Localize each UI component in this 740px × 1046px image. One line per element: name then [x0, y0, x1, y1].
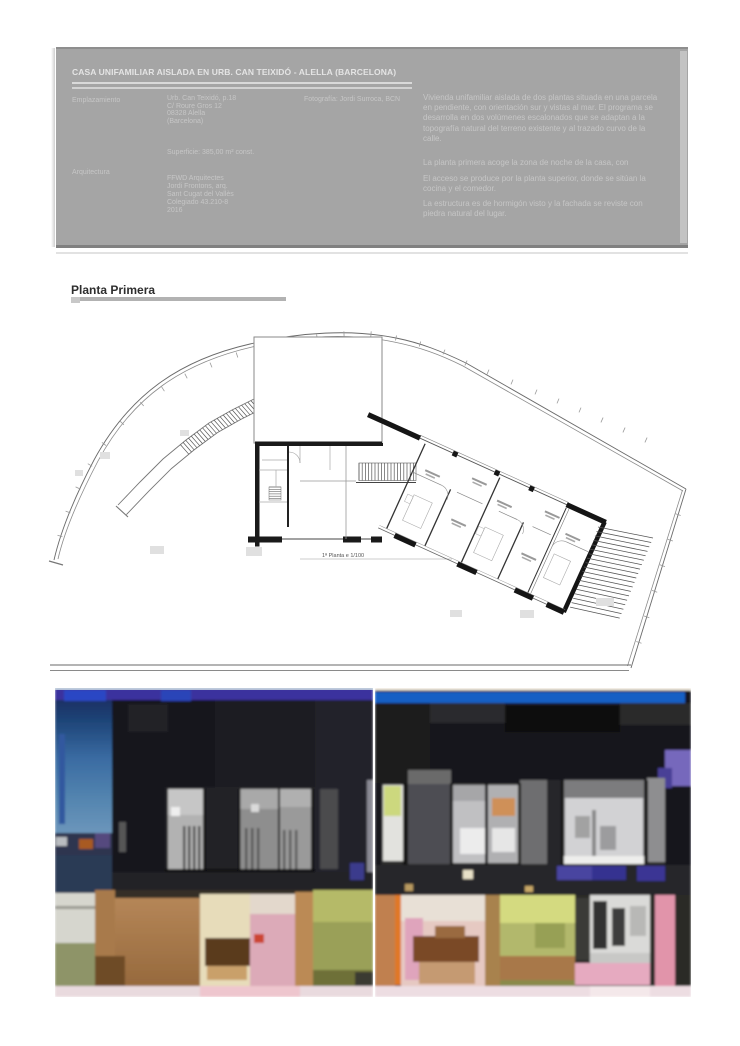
- svg-text:1ª Planta e 1/100: 1ª Planta e 1/100: [322, 552, 364, 559]
